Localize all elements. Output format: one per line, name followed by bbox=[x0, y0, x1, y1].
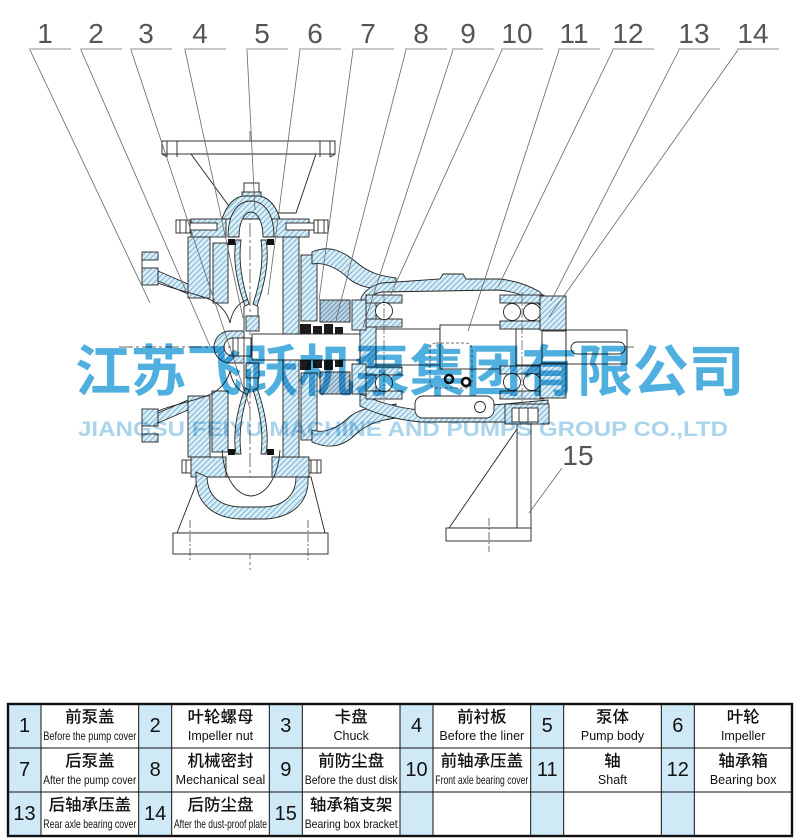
svg-text:After the pump cover: After the pump cover bbox=[43, 773, 136, 787]
svg-text:5: 5 bbox=[254, 18, 270, 49]
svg-text:12: 12 bbox=[667, 759, 689, 781]
svg-text:JIANGSU FEIYU MACHINE AND PUMP: JIANGSU FEIYU MACHINE AND PUMPS GROUP CO… bbox=[78, 418, 728, 441]
svg-text:9: 9 bbox=[280, 759, 291, 781]
svg-text:3: 3 bbox=[138, 18, 154, 49]
svg-text:After the dust-proof plate: After the dust-proof plate bbox=[174, 817, 267, 831]
svg-text:7: 7 bbox=[19, 759, 30, 781]
svg-text:14: 14 bbox=[144, 803, 166, 825]
svg-text:Bearing box bracket: Bearing box bracket bbox=[305, 817, 399, 831]
svg-text:Rear axle bearing cover: Rear axle bearing cover bbox=[43, 817, 136, 831]
svg-text:Shaft: Shaft bbox=[598, 773, 628, 787]
svg-text:Chuck: Chuck bbox=[333, 729, 369, 743]
svg-text:Before the dust disk: Before the dust disk bbox=[305, 773, 399, 787]
svg-text:11: 11 bbox=[559, 18, 588, 49]
svg-text:10: 10 bbox=[501, 18, 532, 49]
svg-text:12: 12 bbox=[612, 18, 643, 49]
svg-text:5: 5 bbox=[542, 715, 553, 737]
svg-text:8: 8 bbox=[413, 18, 429, 49]
svg-text:Impeller: Impeller bbox=[721, 729, 765, 743]
svg-text:Bearing box: Bearing box bbox=[710, 773, 777, 787]
svg-text:Before the liner: Before the liner bbox=[439, 729, 524, 743]
svg-text:13: 13 bbox=[678, 18, 709, 49]
svg-text:9: 9 bbox=[460, 18, 476, 49]
svg-text:Pump body: Pump body bbox=[581, 729, 645, 743]
svg-text:3: 3 bbox=[280, 715, 291, 737]
svg-text:6: 6 bbox=[307, 18, 323, 49]
svg-text:1: 1 bbox=[19, 715, 30, 737]
svg-text:15: 15 bbox=[562, 440, 593, 471]
svg-text:8: 8 bbox=[150, 759, 161, 781]
svg-text:4: 4 bbox=[192, 18, 208, 49]
svg-text:Mechanical seal: Mechanical seal bbox=[176, 773, 266, 787]
svg-text:15: 15 bbox=[275, 803, 297, 825]
svg-text:13: 13 bbox=[13, 803, 35, 825]
svg-text:Before the pump cover: Before the pump cover bbox=[43, 729, 136, 743]
svg-text:7: 7 bbox=[360, 18, 376, 49]
svg-text:2: 2 bbox=[88, 18, 104, 49]
svg-text:4: 4 bbox=[411, 715, 422, 737]
svg-text:2: 2 bbox=[150, 715, 161, 737]
svg-text:11: 11 bbox=[537, 759, 558, 781]
svg-text:10: 10 bbox=[405, 759, 427, 781]
svg-text:Front axle bearing cover: Front axle bearing cover bbox=[435, 773, 528, 787]
svg-text:Impeller nut: Impeller nut bbox=[188, 729, 254, 743]
svg-text:6: 6 bbox=[672, 715, 683, 737]
svg-text:1: 1 bbox=[37, 18, 53, 49]
svg-text:14: 14 bbox=[737, 18, 768, 49]
